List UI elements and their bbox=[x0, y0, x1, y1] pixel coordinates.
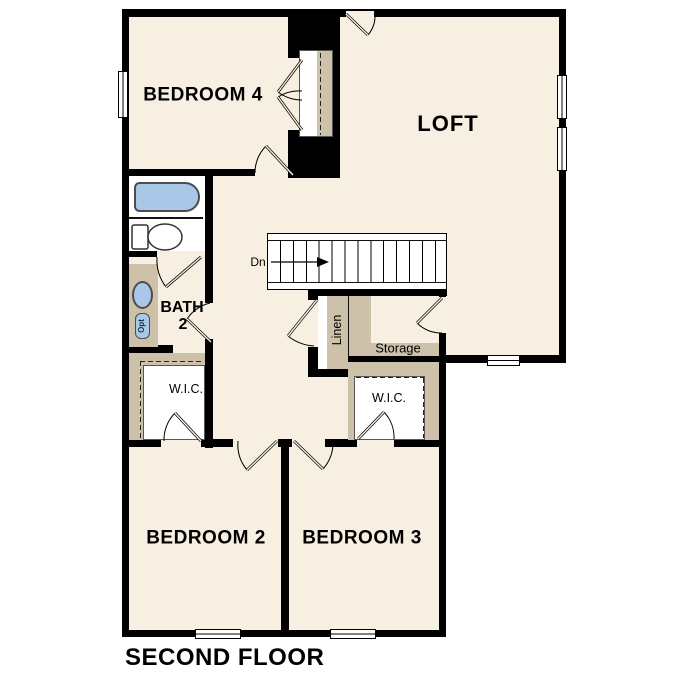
wall-linen-bottom bbox=[308, 369, 348, 377]
wall-wic-left-right bbox=[205, 339, 213, 448]
stairs-down-label: Dn bbox=[250, 256, 265, 268]
bedroom3-label: BEDROOM 3 bbox=[302, 529, 422, 548]
wall-linen-left-a bbox=[308, 290, 318, 300]
wic-left-label: W.I.C. bbox=[169, 383, 203, 396]
window-bedroom4-left bbox=[118, 71, 128, 118]
wall-hall-bedrooms-4 bbox=[325, 439, 357, 447]
bedroom4-label: BEDROOM 4 bbox=[143, 86, 263, 105]
bathtub bbox=[134, 182, 200, 212]
optional-label: Opt bbox=[138, 319, 146, 333]
wall-bottom bbox=[122, 630, 446, 637]
bath-label-line2: 2 bbox=[179, 317, 188, 333]
loft-label: LOFT bbox=[417, 113, 478, 135]
bedroom2-label: BEDROOM 2 bbox=[146, 529, 266, 548]
plan-title: SECOND FLOOR bbox=[125, 646, 324, 670]
wall-bath-hall bbox=[205, 176, 213, 303]
storage-shelf-left bbox=[349, 296, 371, 356]
wall-hall-bedrooms-2 bbox=[201, 439, 233, 447]
stair-stringer-bottom bbox=[268, 282, 446, 283]
wall-bedroom4-bottom bbox=[122, 169, 255, 176]
bath-label-line1: BATH bbox=[160, 300, 203, 316]
window-loft-bottom bbox=[487, 355, 520, 366]
window-loft-right-1 bbox=[557, 75, 567, 119]
wall-right-lower bbox=[439, 333, 446, 637]
storage-label: Storage bbox=[375, 342, 421, 355]
bedroom4-closet-shelf bbox=[317, 51, 332, 136]
wic-left-inner bbox=[143, 365, 205, 440]
loft-top-door-opening bbox=[346, 11, 374, 17]
window-bedroom2 bbox=[195, 629, 241, 639]
linen-label: Linen bbox=[331, 315, 344, 346]
wall-hall-bedrooms-1 bbox=[122, 439, 161, 447]
wall-hall-bedrooms-5 bbox=[394, 439, 446, 447]
stair-treads bbox=[280, 241, 447, 282]
window-loft-right-2 bbox=[557, 127, 567, 171]
wall-bedroom2-3-divider bbox=[281, 439, 289, 630]
window-bedroom3 bbox=[330, 629, 376, 639]
vanity-sink bbox=[132, 281, 153, 309]
wall-bath-inner bbox=[129, 251, 157, 257]
line-tub-divider bbox=[129, 217, 203, 219]
wall-loft-right bbox=[559, 9, 566, 363]
wic-right-label: W.I.C. bbox=[372, 392, 406, 405]
wall-top bbox=[122, 9, 566, 17]
wic-right-inner bbox=[354, 376, 425, 440]
floor-plan: BEDROOM 4 LOFT BEDROOM 2 BEDROOM 3 BATH … bbox=[0, 0, 687, 687]
